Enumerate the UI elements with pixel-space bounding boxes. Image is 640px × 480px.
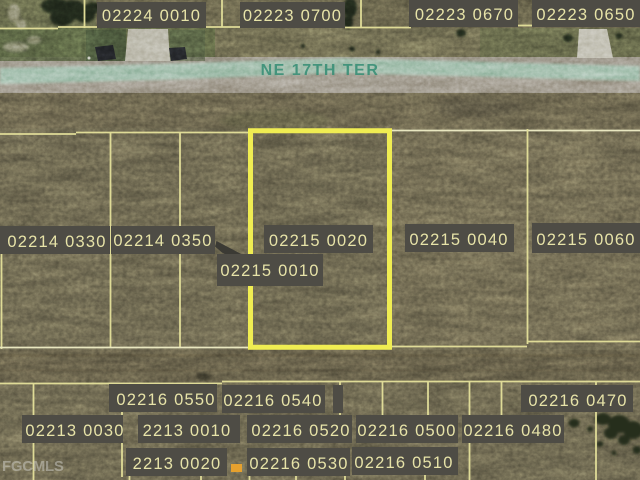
svg-text:02216 0550: 02216 0550 [116, 391, 215, 409]
svg-text:02223 0650: 02223 0650 [536, 6, 635, 24]
svg-text:02216 0540: 02216 0540 [223, 392, 322, 410]
svg-text:02213 0030: 02213 0030 [25, 422, 124, 440]
svg-text:02215 0020: 02215 0020 [269, 232, 368, 250]
svg-text:02216 0510: 02216 0510 [354, 454, 453, 472]
svg-text:02224 0010: 02224 0010 [102, 7, 201, 25]
svg-text:02216 0470: 02216 0470 [528, 392, 627, 410]
svg-text:FGCMLS: FGCMLS [2, 458, 64, 475]
svg-text:NE 17TH TER: NE 17TH TER [261, 62, 380, 79]
svg-text:02216 0530: 02216 0530 [249, 455, 348, 473]
svg-text:02223 0670: 02223 0670 [415, 6, 514, 24]
svg-text:02214 0350: 02214 0350 [113, 232, 212, 250]
svg-text:02223 0700: 02223 0700 [243, 7, 342, 25]
svg-text:02215 0040: 02215 0040 [409, 231, 508, 249]
svg-text:02216 0480: 02216 0480 [463, 422, 562, 440]
svg-text:2213 0010: 2213 0010 [143, 422, 232, 440]
svg-text:02216 0500: 02216 0500 [357, 422, 456, 440]
svg-text:02215 0010: 02215 0010 [220, 262, 319, 280]
svg-text:02214 0330: 02214 0330 [7, 233, 106, 251]
svg-text:02216 0520: 02216 0520 [251, 422, 350, 440]
svg-text:2213 0020: 2213 0020 [133, 455, 222, 473]
svg-text:02215 0060: 02215 0060 [536, 231, 635, 249]
